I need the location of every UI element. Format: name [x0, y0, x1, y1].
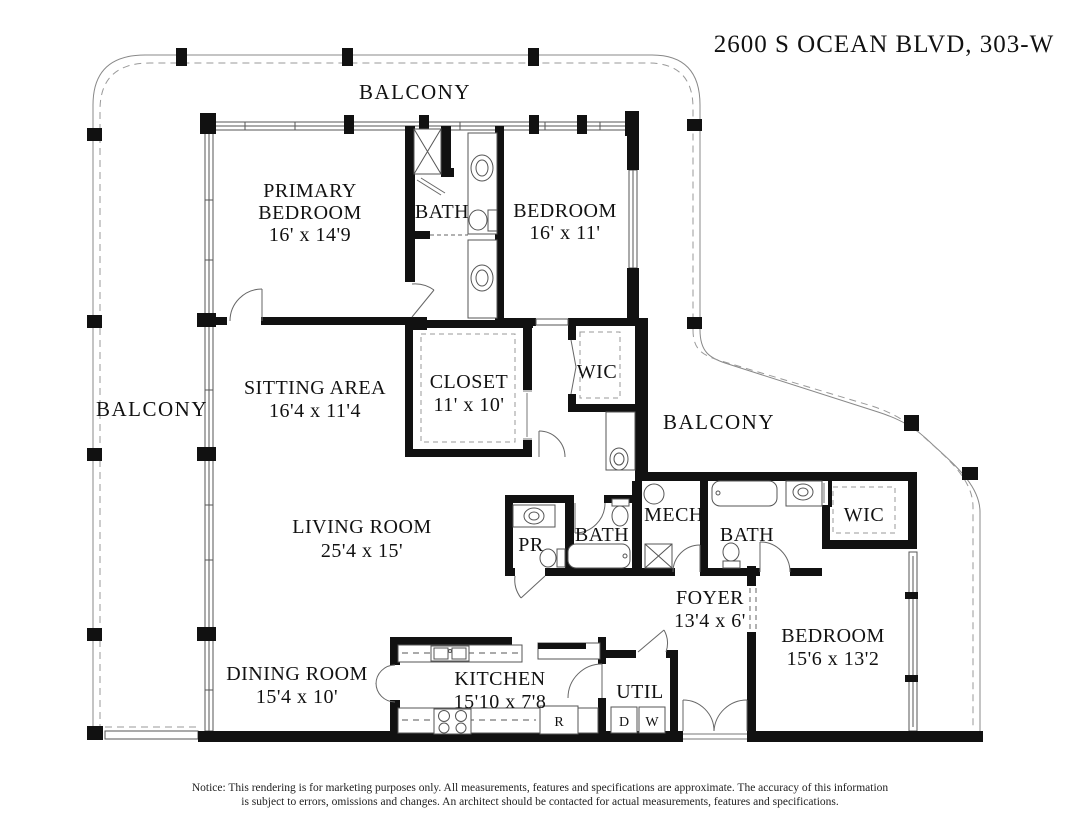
- room-label-mech: MECH: [644, 504, 704, 526]
- room-dims-bedroom-3: 15'6 x 13'2: [787, 648, 880, 670]
- room-label-bedroom-2: BEDROOM: [513, 200, 617, 222]
- room-dims-bedroom-2: 16' x 11': [530, 222, 601, 244]
- toilet-icon: [540, 549, 565, 567]
- room-label-balcony-right: BALCONY: [663, 410, 775, 434]
- room-dims-kitchen: 15'10 x 7'8: [454, 691, 547, 713]
- room-label-foyer: FOYER: [676, 587, 744, 609]
- room-label-pr: PR: [518, 534, 544, 556]
- room-label-closet: CLOSET: [430, 371, 509, 393]
- mech-platform: [645, 544, 672, 568]
- shower: [414, 129, 441, 174]
- room-label-balcony-top: BALCONY: [359, 80, 471, 104]
- sink-icon: [471, 155, 493, 181]
- sink-icon: [471, 265, 493, 291]
- room-label-bath-primary: BATH: [415, 201, 469, 223]
- floor-plan-drawing: 2600 S OCEAN BLVD, 303-W BALCONY BALCONY…: [0, 0, 1080, 834]
- room-label-kitchen: KITCHEN: [454, 668, 545, 690]
- room-dims-primary-bedroom: 16' x 14'9: [269, 224, 351, 246]
- sink-icon: [793, 484, 813, 500]
- appliance-label-refrigerator: R: [554, 715, 564, 730]
- appliance-label-dryer: D: [619, 715, 629, 730]
- room-dims-closet: 11' x 10': [434, 394, 505, 416]
- notice-line-1: Notice: This rendering is for marketing …: [192, 782, 889, 794]
- room-label-balcony-left: BALCONY: [96, 397, 208, 421]
- room-dims-sitting-area: 16'4 x 11'4: [269, 400, 361, 422]
- doors: [230, 178, 824, 739]
- room-label-bath-2: BATH: [575, 524, 629, 546]
- floor-plan-page: 2600 S OCEAN BLVD, 303-W BALCONY BALCONY…: [0, 0, 1080, 834]
- room-dims-foyer: 13'4 x 6': [674, 610, 746, 632]
- room-label-bath-3: BATH: [720, 524, 774, 546]
- upper-cabinet: [538, 643, 586, 649]
- toilet-icon: [469, 210, 497, 231]
- bathtub: [568, 544, 630, 568]
- bathtub: [712, 481, 777, 506]
- room-label-bedroom-3: BEDROOM: [781, 625, 885, 647]
- room-label-living-room: LIVING ROOM: [292, 516, 431, 538]
- water-heater: [644, 484, 664, 504]
- kitchen-sink: [431, 646, 469, 661]
- room-label-primary-bedroom-2: BEDROOM: [258, 202, 362, 224]
- room-label-util: UTIL: [616, 681, 664, 703]
- room-label-wic-1: WIC: [577, 361, 617, 383]
- sink-icon: [610, 448, 628, 470]
- room-label-wic-2: WIC: [844, 504, 884, 526]
- sink-icon: [524, 508, 544, 524]
- room-dims-dining-room: 15'4 x 10': [256, 686, 338, 708]
- room-dims-living-room: 25'4 x 15': [321, 540, 403, 562]
- notice-line-2: is subject to errors, omissions and chan…: [241, 796, 839, 808]
- toilet-icon: [612, 499, 629, 526]
- room-label-dining-room: DINING ROOM: [226, 663, 368, 685]
- room-label-sitting-area: SITTING AREA: [244, 377, 386, 399]
- toilet-icon: [723, 543, 740, 568]
- page-title: 2600 S OCEAN BLVD, 303-W: [714, 31, 1054, 58]
- room-label-primary-bedroom-1: PRIMARY: [263, 180, 357, 202]
- appliance-label-washer: W: [645, 715, 659, 730]
